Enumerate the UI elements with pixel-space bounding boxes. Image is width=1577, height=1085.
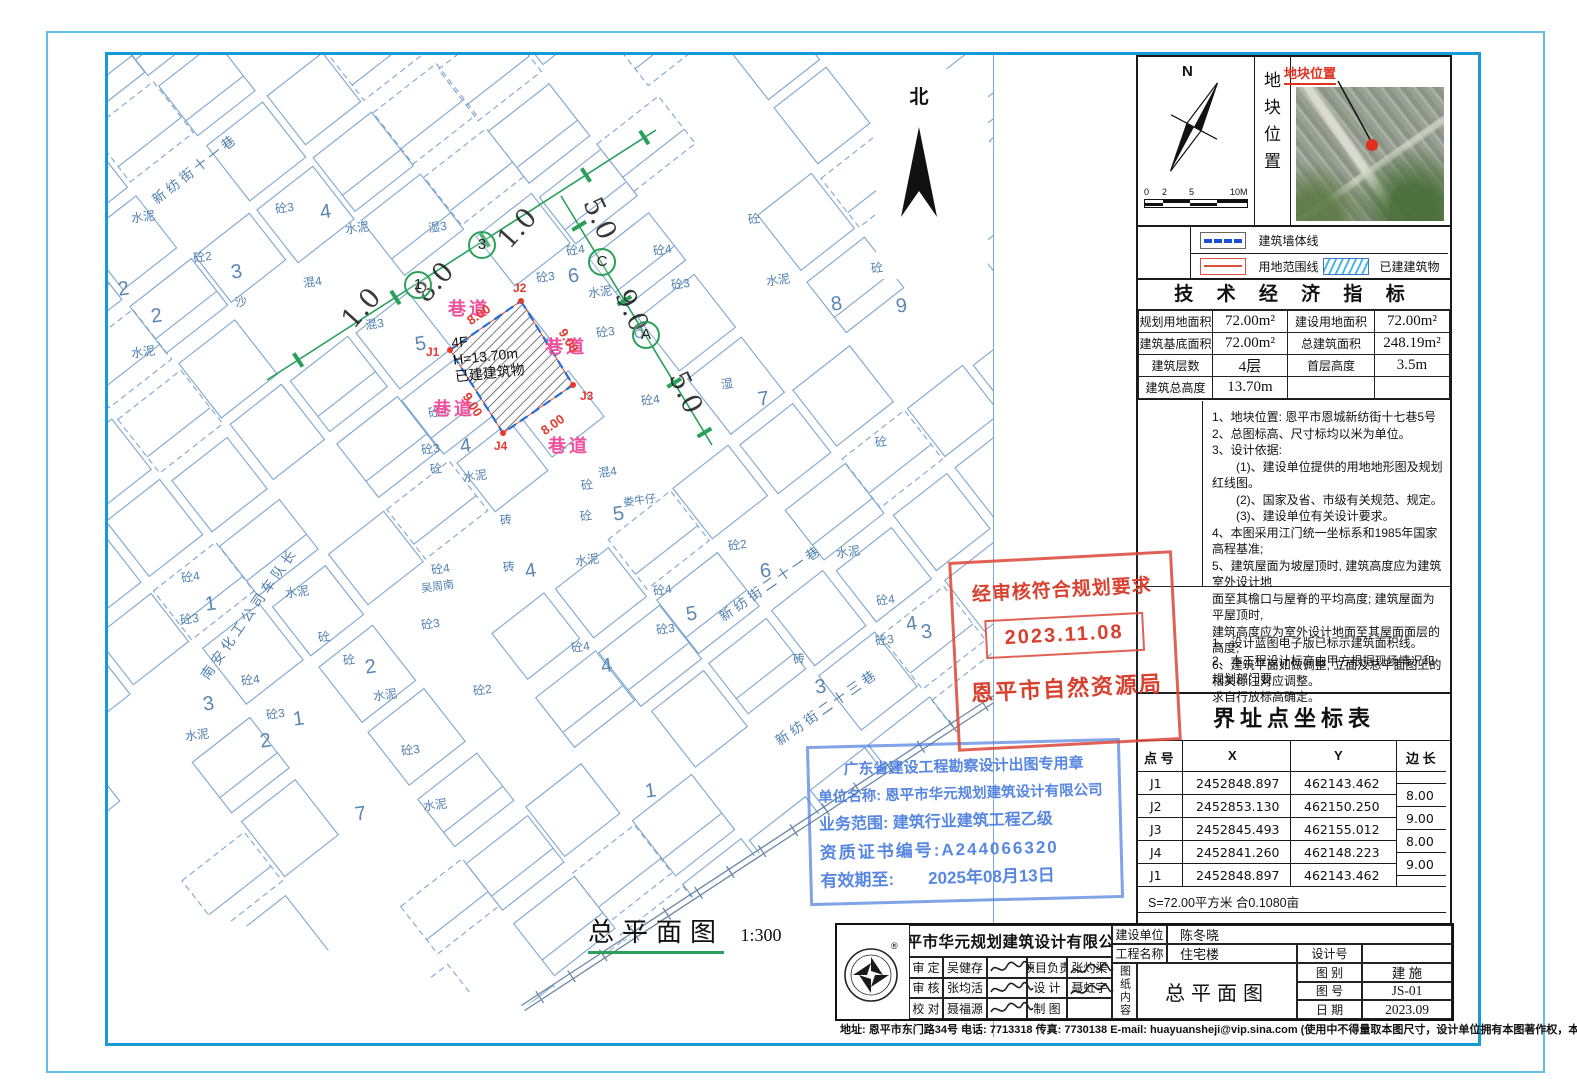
sig-role-label: 审 核 (909, 978, 943, 999)
parcel-label: 砼3 (420, 614, 441, 633)
content-label: 图纸内容 (1112, 963, 1137, 1019)
label (1138, 794, 1396, 795)
coord-x-value: 2452853.130 (1196, 799, 1280, 814)
note-line: (2)、国家及省、市级有关规范、规定。 (1212, 492, 1446, 509)
label (1290, 741, 1291, 886)
parcel-label: 砖 (792, 649, 806, 668)
indicators-title: 技 术 经 济 指 标 (1138, 280, 1450, 310)
parcel-label: 砼4 (565, 240, 586, 259)
axis-grid-bubble: A (632, 321, 660, 349)
handwritten-signature (989, 959, 1035, 979)
drawing-title-text: 总平面图 (588, 917, 724, 954)
parcel-label: 沙 (234, 292, 248, 311)
project-label: 工程名称 (1112, 944, 1167, 963)
note-line: (3)、建设单位有关设计要求。 (1212, 508, 1446, 525)
parcel-label: 砼3 (595, 322, 616, 341)
company-logo: ® (837, 925, 909, 1019)
indicators-table: 规划用地面积72.00m²建设用地面积72.00m²建筑基底面积72.00m²总… (1138, 310, 1450, 400)
project-value: 住宅楼 (1167, 944, 1297, 963)
parcel-label: 混4 (302, 272, 323, 291)
parcel-label: 砼 (747, 209, 761, 228)
qualification-stamp: 广东省建设工程勘察设计出图专用章 单位名称: 恩平市华元规划建筑设计有限公司 业… (806, 738, 1124, 906)
parcel-label: 水泥 (130, 206, 156, 226)
coord-y-value: 462143.462 (1304, 868, 1380, 883)
note-line: 2、总图标高、尺寸标均以米为单位。 (1212, 426, 1446, 443)
indicator-value (1375, 377, 1450, 399)
scale-bar: 02510M (1144, 187, 1248, 208)
coord-header: X (1228, 748, 1237, 763)
label (1396, 875, 1446, 876)
note-line: 4、本图采用江门统一坐标系和1985年国家高程基准; (1212, 525, 1446, 558)
stamp-scope: 业务范围: 建筑行业建筑工程乙级 (819, 803, 1112, 835)
drawing-scale: 1:300 (740, 925, 781, 945)
scale-bar-tick: 2 (1162, 187, 1167, 197)
indicator-value: 72.00m² (1375, 311, 1450, 333)
stamp-unit: 单位名称: 恩平市华元规划建筑设计有限公司 (818, 778, 1110, 807)
location-vertical-label: 地块位置 (1258, 71, 1283, 221)
parcel-label: 砼3 (655, 619, 676, 638)
parcel-label: 砼 (317, 627, 331, 646)
stamp-approval-text: 经审核符合规划要求 (952, 569, 1171, 607)
parcel-label: 水泥 (344, 217, 370, 237)
handwritten-signature (1069, 982, 1115, 1002)
parcel-label: 砼4 (180, 567, 201, 586)
coord-point-id: J2 (1150, 799, 1162, 814)
coord-table-title: 界址点坐标表 (1138, 694, 1450, 740)
coord-edge-length: 9.00 (1406, 811, 1434, 826)
note-line: 3、设计依据: (1212, 442, 1446, 459)
legend-boundary-label: 用地范围线 (1258, 260, 1318, 274)
scale-bar-tick: 5 (1189, 187, 1194, 197)
coord-header: 点 号 (1144, 748, 1174, 767)
parcel-label: 水泥 (462, 465, 488, 485)
plot-annotation: 4FH=13.70m已建建筑物 (451, 327, 526, 385)
label (1396, 783, 1446, 784)
indicator-value: 72.00m² (1213, 333, 1288, 355)
note-line: 5、建筑屋面为坡屋顶时, 建筑高度应为建筑室外设计地 (1212, 558, 1446, 591)
stamp-valid-date: 有效期至: 2025年08月13日 (820, 859, 1113, 892)
indicator-label: 建筑总高度 (1139, 377, 1213, 399)
drawing-title: 总平面图 1:300 (588, 912, 781, 949)
indicator-label: 规划用地面积 (1139, 311, 1213, 333)
legend-wall-symbol: 建筑墙体线 (1200, 232, 1318, 250)
approval-stamp: 经审核符合规划要求 2023.11.08 恩平市自然资源局 (948, 550, 1182, 751)
sig-name: 张均活 (943, 978, 987, 999)
company-address-line: 地址: 恩平市东门路34号 电话: 7713318 传真: 7730138 E-… (840, 1021, 1446, 1037)
note-line: 2、本工程设计标高由甲方根据现场情况和规划部门要 (1212, 652, 1446, 688)
scale-bar-segment (1190, 203, 1217, 206)
indicator-label: 建筑层数 (1139, 355, 1213, 377)
indicator-label: 建筑基底面积 (1139, 333, 1213, 355)
parcel-label: 水泥 (574, 549, 600, 569)
coord-x-value: 2452841.260 (1196, 845, 1280, 860)
coord-y-value: 462150.250 (1304, 799, 1380, 814)
scale-bar-tick: 0 (1144, 187, 1149, 197)
scale-bar-segment (1163, 203, 1190, 206)
parcel-label: 砼3 (535, 267, 556, 286)
parcel-label: 砼4 (430, 559, 451, 578)
north-arrow-icon (893, 109, 945, 249)
parcel-label: 砼3 (874, 630, 895, 649)
title-block: ®恩平市华元规划建筑设计有限公司审 定吴健存项目负责张灼渠审 核张均活设 计聂虹… (835, 923, 1454, 1021)
coord-y-value: 462155.012 (1304, 822, 1380, 837)
owner-value: 陈冬晓 (1167, 925, 1452, 944)
parcel-label: 砖 (499, 510, 513, 529)
indicator-label: 建设用地面积 (1288, 311, 1375, 333)
svg-text:®: ® (891, 941, 898, 951)
indicator-label: 总建筑面积 (1288, 333, 1375, 355)
drawing-sheet: 砼23砼34水泥混4混35湿3沙22水泥水泥砼36水泥砼4砼3砼4砼3水泥砼89… (0, 0, 1577, 1085)
stamp-authority-name: 恩平市自然资源局 (957, 665, 1176, 708)
alley-label: 巷道 (548, 432, 590, 458)
parcel-label: 砼3 (400, 740, 421, 759)
label (1396, 852, 1446, 853)
indicator-label (1288, 377, 1375, 399)
coord-x-value: 2452848.897 (1196, 776, 1280, 791)
parcel-label: 砼3 (670, 274, 691, 293)
general-notes: 1、地块位置: 恩平市恩城新纺街十七巷5号2、总图标高、尺寸标均以米为单位。3、… (1138, 401, 1450, 587)
parcel-label: 砼2 (472, 680, 493, 699)
parcel-label: 砼 (579, 506, 593, 525)
company-name: 恩平市华元规划建筑设计有限公司 (909, 925, 1112, 957)
photo-pointer (1296, 77, 1444, 221)
handwritten-signature (989, 980, 1035, 1000)
extra-notes: 1、设计蓝图电子版已标示建筑面积线。2、本工程设计标高由甲方根据现场情况和规划部… (1138, 588, 1450, 694)
coord-edge-length: 9.00 (1406, 857, 1434, 872)
coord-point-id: J1 (1150, 776, 1162, 791)
location-section: N 02510M 地块位置 地块位置 (1138, 57, 1450, 227)
boundary-point-label: J1 (426, 345, 439, 359)
label (1138, 771, 1446, 772)
parcel-label: 水泥 (130, 341, 156, 361)
boundary-point-label: J3 (580, 389, 593, 403)
indicator-value: 248.19m² (1375, 333, 1450, 355)
north-arrow: 北 (893, 82, 945, 254)
parcel-label: 砼 (870, 258, 884, 277)
scale-bar-tick: 10M (1230, 187, 1248, 197)
design-no-label: 设计号 (1297, 944, 1362, 963)
coord-point-id: J1 (1150, 868, 1162, 883)
parcel-label: 砼3 (274, 198, 295, 217)
parcel-label: 水泥 (184, 724, 210, 744)
stamp-approval-date: 2023.11.08 (984, 612, 1145, 659)
legend-section: 建筑墙体线 用地范围线 已建建筑物 (1138, 227, 1450, 280)
legend-built-label: 已建建筑物 (1379, 260, 1439, 274)
label (1396, 829, 1446, 830)
sig-name: 吴健存 (943, 957, 987, 978)
meta-label: 图 号 (1297, 982, 1362, 1001)
handwritten-signature (1069, 961, 1115, 981)
compass-icon (1142, 65, 1252, 185)
owner-label: 建设单位 (1112, 925, 1167, 944)
parcel-label: 砼 (874, 432, 888, 451)
handwritten-signature (989, 1000, 1035, 1020)
sheet-content: 总平面图 (1137, 963, 1297, 1019)
parcel-label: 砼4 (652, 580, 673, 599)
parcel-label: 砼 (429, 459, 443, 478)
scale-bar-segment (1145, 203, 1163, 206)
axis-grid-bubble: 1 (404, 271, 432, 299)
label (1138, 863, 1396, 864)
sig-role-label: 审 定 (909, 957, 943, 978)
indicator-value: 72.00m² (1213, 311, 1288, 333)
parcel-label: 水泥 (835, 541, 861, 561)
parcel-label: 砼4 (652, 240, 673, 259)
indicator-value: 13.70m (1213, 377, 1288, 399)
label (1138, 817, 1396, 818)
boundary-point-label: J2 (513, 281, 526, 295)
north-label: 北 (893, 82, 945, 109)
coord-point-id: J4 (1150, 845, 1162, 860)
parcel-label: 砼4 (240, 670, 261, 689)
coord-table: 点 号XY边 长J12452848.897462143.462J22452853… (1138, 740, 1450, 924)
legend-built-symbol: 已建建筑物 (1323, 258, 1439, 276)
coord-y-value: 462143.462 (1304, 776, 1380, 791)
coord-point-id: J3 (1150, 822, 1162, 837)
parcel-label: 水泥 (765, 269, 791, 289)
meta-label: 图 别 (1297, 963, 1362, 982)
meta-value: JS-01 (1362, 982, 1452, 1001)
parcel-label: 砼 (580, 475, 594, 494)
label (1138, 840, 1396, 841)
note-line: 1、地块位置: 恩平市恩城新纺街十七巷5号 (1212, 409, 1446, 426)
parcel-label: 砼 (342, 650, 356, 669)
coord-header: Y (1334, 748, 1343, 763)
parcel-label: 砼4 (570, 637, 591, 656)
axis-grid-bubble: 3 (468, 231, 496, 259)
coord-header: 边 长 (1406, 748, 1436, 767)
parcel-label: 砼2 (192, 247, 213, 266)
label (1396, 741, 1397, 886)
parcel-label: 湿3 (427, 217, 448, 236)
parcel-label: 砼3 (179, 609, 200, 628)
indicator-value: 3.5m (1375, 355, 1450, 377)
note-line: (1)、建设单位提供的用地地形图及规划红线图。 (1212, 459, 1446, 492)
coord-x-value: 2452845.493 (1196, 822, 1280, 837)
scale-bar-segment (1217, 203, 1247, 206)
label (1138, 912, 1446, 913)
boundary-point-label: J4 (494, 439, 507, 453)
stamp-title: 广东省建设工程勘察设计出图专用章 (817, 751, 1109, 780)
parcel-label: 水泥 (372, 684, 398, 704)
stamp-cert-no: 资质证书编号:A244066320 (819, 831, 1112, 864)
coord-x-value: 2452848.897 (1196, 868, 1280, 883)
parcel-label: 砖 (502, 557, 516, 576)
sig-name: 聂福源 (943, 998, 987, 1019)
company-logo-icon: ® (843, 937, 903, 1007)
label (1182, 741, 1183, 886)
label (1138, 886, 1446, 887)
legend-boundary-symbol: 用地范围线 (1200, 258, 1318, 276)
right-info-panel: N 02510M 地块位置 地块位置 (1136, 55, 1452, 926)
parcel-label: 混4 (597, 462, 618, 481)
note-line: 1、设计蓝图电子版已标示建筑面积线。 (1212, 634, 1446, 652)
meta-value: 建 施 (1362, 963, 1452, 982)
parcel-label: 砼3 (265, 704, 286, 723)
label (1396, 806, 1446, 807)
legend-wall-label: 建筑墙体线 (1258, 234, 1318, 248)
coord-edge-length: 8.00 (1406, 788, 1434, 803)
parcel-label: 砼2 (727, 535, 748, 554)
axis-grid-bubble: C (588, 248, 616, 276)
parcel-label: 湿 (720, 374, 734, 393)
design-no-value (1362, 944, 1452, 963)
parcel-label: 砼3 (420, 439, 441, 458)
parcel-label: 水泥 (422, 794, 448, 814)
meta-label: 日 期 (1297, 1000, 1362, 1019)
coord-area-summary: S=72.00平方米 合0.1080亩 (1148, 892, 1299, 911)
sig-role-label: 校 对 (909, 998, 943, 1019)
parcel-label: 砼4 (640, 390, 661, 409)
indicator-label: 首层高度 (1288, 355, 1375, 377)
meta-value: 2023.09 (1362, 1000, 1452, 1019)
indicator-value: 4层 (1213, 355, 1288, 377)
parcel-label: 水泥 (284, 581, 310, 601)
coord-y-value: 462148.223 (1304, 845, 1380, 860)
content-label-text: 图纸内容 (1117, 965, 1133, 1017)
coord-edge-length: 8.00 (1406, 834, 1434, 849)
parcel-label: 砼4 (875, 590, 896, 609)
